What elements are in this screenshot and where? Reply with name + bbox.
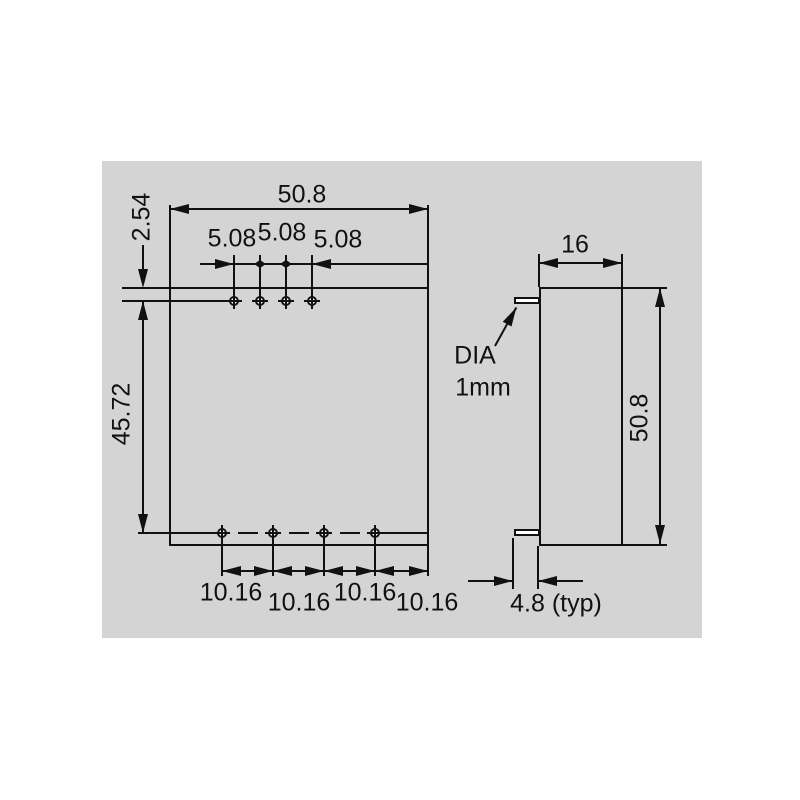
pin-protrusion-label: 4.8 (typ) <box>510 592 602 617</box>
top-pitch-label-3: 5.08 <box>314 228 363 253</box>
dim-arrowhead <box>324 566 343 576</box>
extension-line <box>169 205 171 287</box>
dim-arrowhead <box>356 566 375 576</box>
side-pin-top <box>514 297 540 304</box>
pin-crosshair <box>272 525 274 541</box>
dim-arrowhead <box>138 301 148 320</box>
top-offset-label: 2.54 <box>130 193 155 242</box>
bottom-pitch-label-4: 10.16 <box>396 591 459 616</box>
row-span-dim-line <box>142 301 144 533</box>
extension-line <box>427 205 429 287</box>
pin-crosshair <box>221 525 223 541</box>
dim-arrowhead <box>603 258 622 268</box>
dim-arrowhead <box>215 259 234 269</box>
side-pin-bottom <box>514 529 540 536</box>
dim-arrowhead <box>539 258 558 268</box>
extension-line <box>122 287 170 289</box>
dim-arrowhead <box>305 566 324 576</box>
dim-arrowhead <box>409 566 428 576</box>
dim-arrowhead <box>222 566 241 576</box>
pin-crosshair <box>323 525 325 541</box>
page: { "front_view": { "overall_width": "50.8… <box>0 0 800 800</box>
dim-diamond <box>280 260 292 268</box>
leader-line <box>494 307 517 346</box>
top-pitch-label-1: 5.08 <box>208 227 257 252</box>
dim-arrowhead <box>655 525 665 544</box>
center-dash <box>340 532 360 534</box>
pin-crosshair <box>311 293 313 309</box>
dim-arrowhead <box>655 288 665 307</box>
pin-crosshair <box>233 293 235 309</box>
leader-arrowhead <box>503 305 521 326</box>
bottom-pin-row-line <box>138 532 214 534</box>
front-view-outline <box>169 287 429 546</box>
extension-line <box>623 544 667 546</box>
bottom-pitch-label-2: 10.16 <box>268 591 331 616</box>
row-span-label: 45.72 <box>110 383 135 446</box>
pin-diameter-label-line1: DIA <box>454 344 496 369</box>
pin-crosshair <box>259 293 261 309</box>
bottom-pin-row-line <box>383 532 428 534</box>
top-pitch-label-2: 5.08 <box>258 221 307 246</box>
center-dash <box>289 532 309 534</box>
height-label: 50.8 <box>628 394 653 443</box>
dim-arrowhead <box>409 204 428 214</box>
depth-label: 16 <box>561 233 589 258</box>
bottom-pitch-label-3: 10.16 <box>334 581 397 606</box>
bottom-pitch-label-1: 10.16 <box>200 581 263 606</box>
pin-crosshair <box>374 525 376 541</box>
front-width-label: 50.8 <box>278 183 327 208</box>
dim-arrowhead <box>494 576 513 586</box>
dim-arrowhead <box>273 566 292 576</box>
dim-arrowhead <box>170 204 189 214</box>
dimension-drawing-canvas: 50.8 5.08 5.08 5.08 2.54 45.72 <box>102 161 702 638</box>
dim-arrowhead <box>312 259 331 269</box>
side-view-outline <box>539 287 623 546</box>
center-dash <box>238 532 258 534</box>
dim-arrowhead <box>375 566 394 576</box>
pin-crosshair <box>285 293 287 309</box>
dim-arrowhead <box>538 576 557 586</box>
dim-arrowhead <box>138 514 148 533</box>
pin-diameter-label-line2: 1mm <box>455 376 511 401</box>
height-dim-line <box>659 288 661 544</box>
dim-arrowhead <box>254 566 273 576</box>
dim-diamond <box>254 260 266 268</box>
dim-arrowhead <box>138 269 148 288</box>
